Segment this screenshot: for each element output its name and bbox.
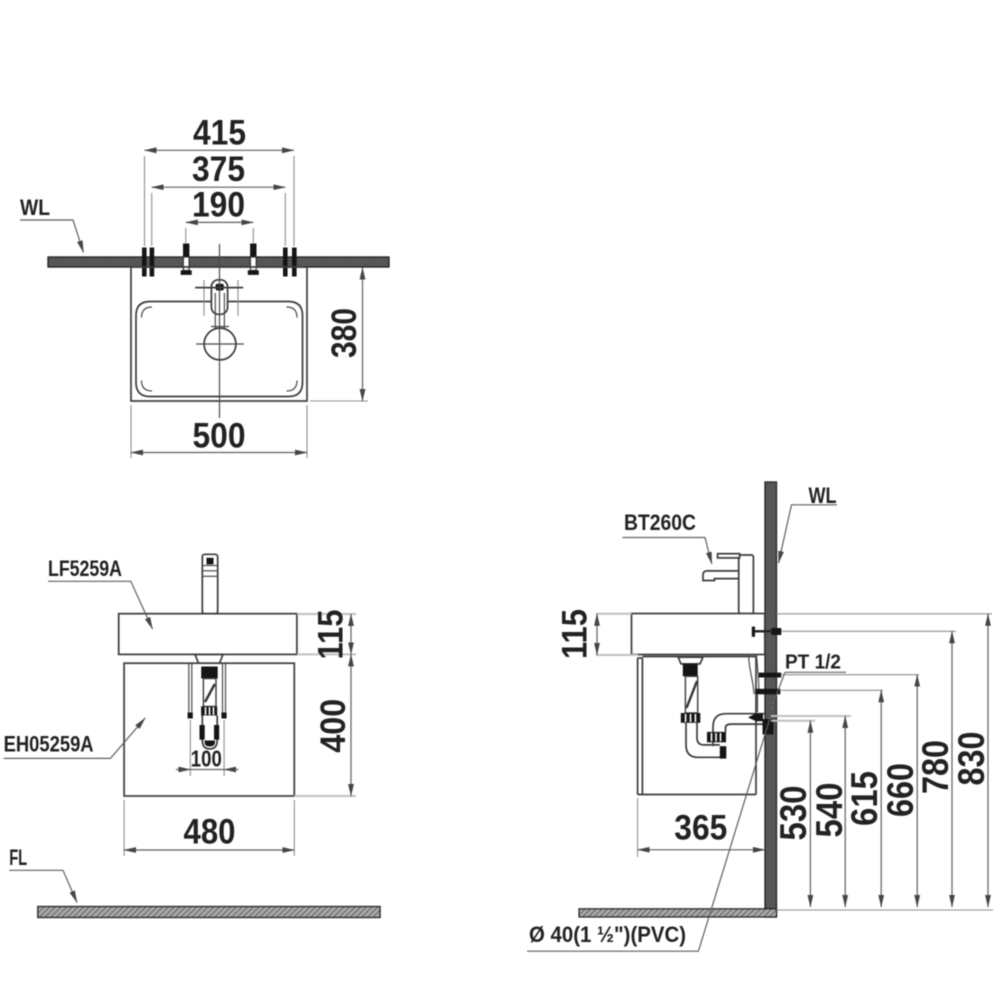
svg-text:100: 100	[191, 746, 222, 772]
svg-text:415: 415	[193, 114, 246, 153]
svg-text:190: 190	[192, 186, 245, 225]
svg-text:LF5259A: LF5259A	[48, 556, 122, 581]
svg-text:FL: FL	[9, 845, 27, 870]
svg-text:EH05259A: EH05259A	[4, 732, 94, 757]
svg-text:BT260C: BT260C	[624, 510, 696, 535]
svg-text:480: 480	[184, 813, 236, 852]
svg-text:115: 115	[556, 609, 595, 659]
svg-text:PT 1/2: PT 1/2	[785, 652, 841, 674]
svg-text:400: 400	[314, 699, 353, 753]
svg-text:830: 830	[951, 732, 992, 786]
svg-text:780: 780	[915, 740, 956, 794]
svg-text:500: 500	[193, 417, 246, 456]
svg-text:615: 615	[844, 771, 885, 826]
svg-text:WL: WL	[20, 195, 50, 220]
svg-text:365: 365	[674, 809, 727, 848]
svg-text:530: 530	[773, 786, 814, 841]
svg-text:380: 380	[325, 308, 364, 358]
svg-text:115: 115	[312, 610, 351, 660]
svg-text:375: 375	[192, 150, 245, 189]
svg-text:Ø 40(1 ½")(PVC): Ø 40(1 ½")(PVC)	[529, 922, 686, 947]
